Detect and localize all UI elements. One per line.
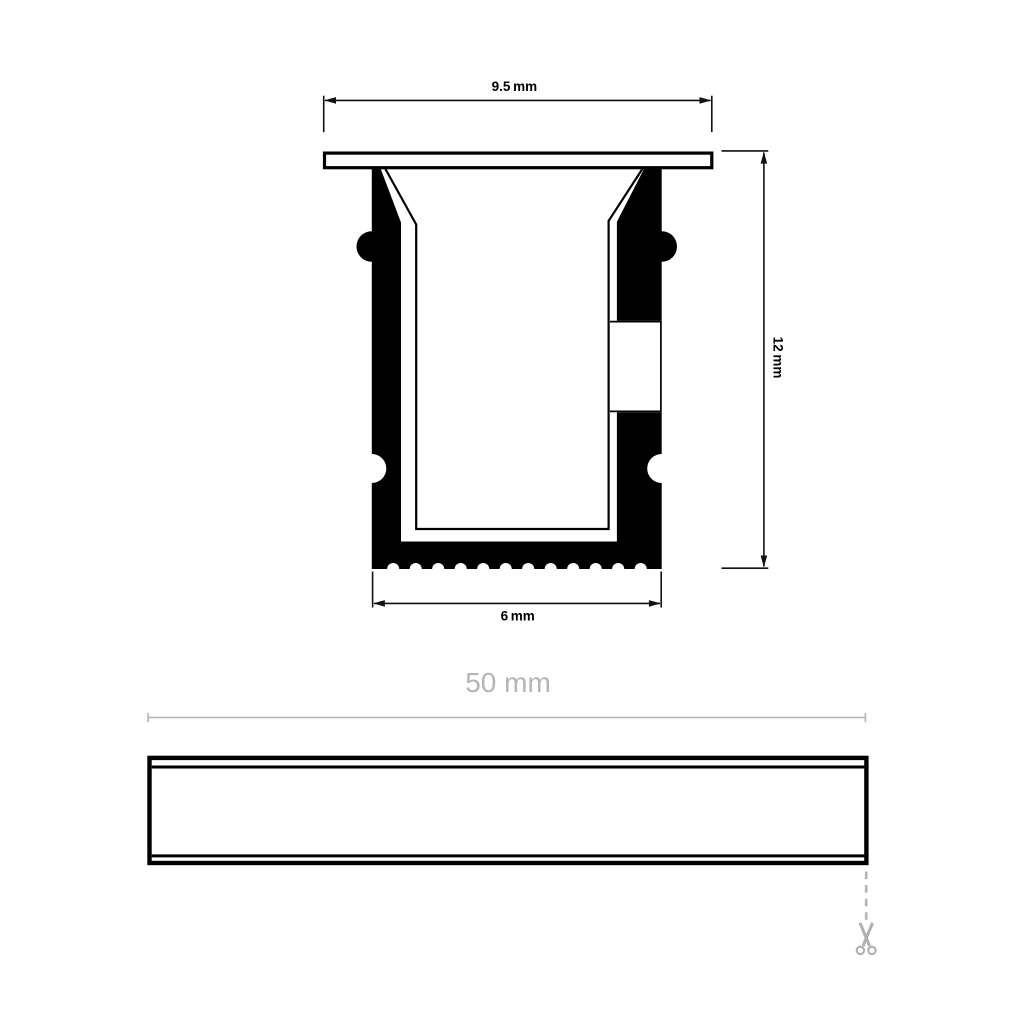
svg-text:6 mm: 6 mm xyxy=(501,608,535,623)
svg-text:50 mm: 50 mm xyxy=(465,667,551,698)
svg-text:12 mm: 12 mm xyxy=(771,337,786,379)
svg-text:9.5 mm: 9.5 mm xyxy=(492,79,537,94)
